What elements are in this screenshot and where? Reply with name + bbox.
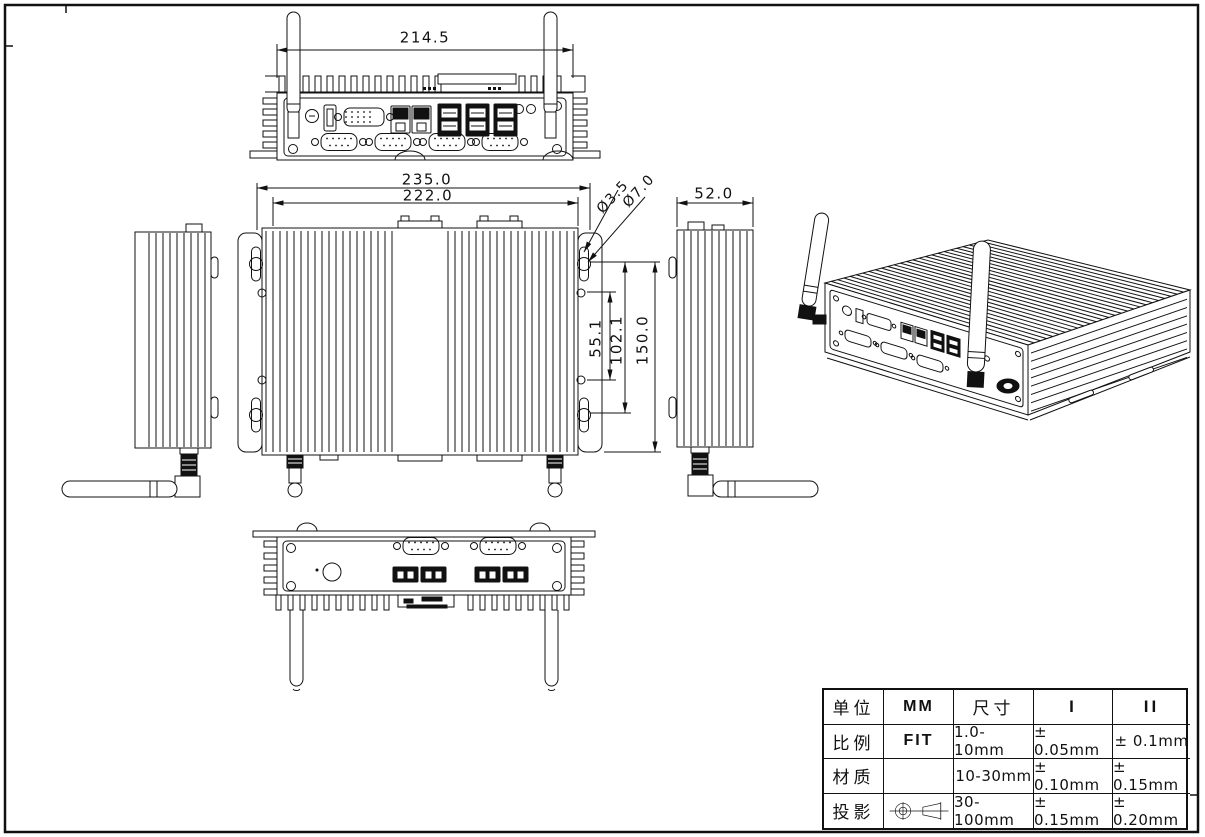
drawing-sheet: 214.5 235.0 222.0 Ø3.5 Ø7.0 52.0 55.1 10… xyxy=(0,0,1205,837)
audio-jacks xyxy=(515,105,536,114)
side-profile-lines xyxy=(149,233,205,447)
table-cell-scale-label: 比例 xyxy=(824,725,884,760)
ear-profile xyxy=(211,257,218,278)
table-cell-range1: 1.0-10mm xyxy=(954,725,1034,760)
antenna-dome xyxy=(297,523,317,531)
antenna-right xyxy=(544,12,557,138)
table-cell-unit-label: 单位 xyxy=(824,690,884,725)
mount-flange-right xyxy=(573,151,600,158)
antenna-folded-right xyxy=(688,447,818,497)
table-cell-tol3-class1: ± 0.15mm xyxy=(1034,794,1113,829)
antenna-folded-left xyxy=(62,448,200,497)
side-fins-right xyxy=(571,541,584,595)
table-cell-range2: 10-30mm xyxy=(954,759,1034,794)
dim-hole-pitch-outer: 102.1 xyxy=(610,315,625,365)
antenna-left xyxy=(287,12,300,138)
table-cell-projection-label: 投影 xyxy=(824,794,884,829)
dim-rear-width: 214.5 xyxy=(400,31,450,46)
front-panel-view xyxy=(253,523,595,691)
ear-profile xyxy=(669,397,676,418)
dim-214-lines xyxy=(277,44,573,78)
antenna-dome xyxy=(530,523,550,531)
side-fins-left xyxy=(263,98,277,148)
table-cell-projection-symbol xyxy=(884,794,954,829)
ear-profile xyxy=(669,257,676,278)
table-cell-class2-header: II xyxy=(1113,690,1190,725)
right-side-view xyxy=(669,197,818,497)
power-button xyxy=(306,110,319,123)
front-io-ports xyxy=(393,538,528,583)
power-connector xyxy=(316,563,342,581)
table-cell-tol2-class2: ± 0.15mm xyxy=(1113,759,1190,794)
mount-flange-left xyxy=(250,151,277,158)
dim-side-depth: 52.0 xyxy=(694,187,733,202)
sma-connector xyxy=(813,315,826,324)
table-cell-tol2-class1: ± 0.10mm xyxy=(1034,759,1113,794)
table-cell-tol1-class1: ± 0.05mm xyxy=(1034,725,1113,760)
isometric-view xyxy=(798,212,1190,420)
left-side-view xyxy=(62,224,218,497)
mount-flange xyxy=(253,531,595,537)
tolerance-table: 单位 MM 尺寸 I II 比例 FIT 1.0-10mm ± 0.05mm ±… xyxy=(822,688,1188,830)
table-cell-material-label: 材质 xyxy=(824,759,884,794)
rear-io-ports xyxy=(306,104,536,151)
table-cell-material-value xyxy=(884,759,954,794)
antenna-down-left xyxy=(290,610,303,691)
side-profile-lines xyxy=(684,231,747,446)
table-cell-scale-value: FIT xyxy=(884,725,954,760)
dim-overall-width: 235.0 xyxy=(402,173,452,188)
first-angle-projection-icon xyxy=(887,795,951,827)
ear-profile xyxy=(211,397,218,418)
table-cell-range3: 30-100mm xyxy=(954,794,1034,829)
dim-fin-width: 222.0 xyxy=(403,189,453,204)
side-fins-left xyxy=(264,541,277,595)
dim-hole-pitch-inner: 55.1 xyxy=(589,318,604,357)
table-cell-tol3-class2: ± 0.20mm xyxy=(1113,794,1190,829)
table-cell-unit-value: MM xyxy=(884,690,954,725)
antenna-connector-left xyxy=(287,455,303,497)
table-cell-tol1-class2: ± 0.1mm xyxy=(1113,725,1190,760)
heatsink-fins xyxy=(266,231,574,452)
side-fins-right xyxy=(573,98,587,148)
table-cell-size-header: 尺寸 xyxy=(954,690,1034,725)
antenna-down-right xyxy=(545,610,558,691)
dim-overall-depth: 150.0 xyxy=(636,315,651,365)
table-cell-class1-header: I xyxy=(1034,690,1113,725)
antenna-connector-right xyxy=(547,455,563,497)
fin-plate xyxy=(438,74,516,84)
